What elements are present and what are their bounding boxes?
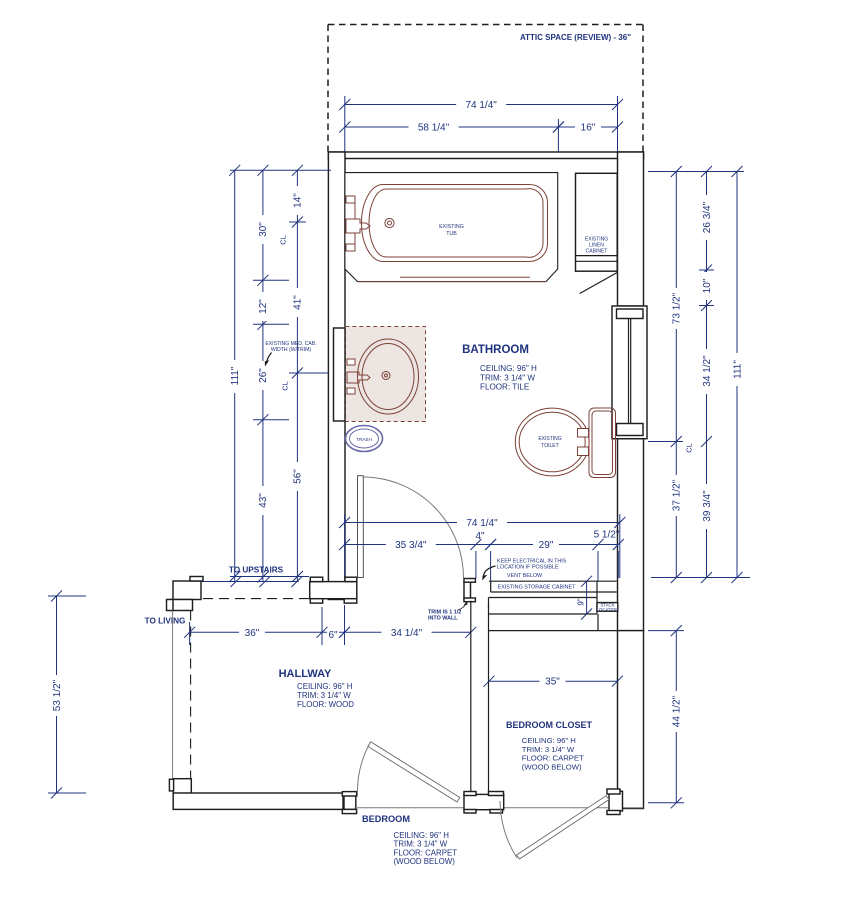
svg-text:EXISTING: EXISTING — [439, 224, 464, 230]
svg-text:34 1/2": 34 1/2" — [702, 355, 713, 387]
svg-text:CEILING: 96" H: CEILING: 96" H — [394, 831, 450, 840]
svg-text:BEDROOM: BEDROOM — [362, 814, 410, 824]
svg-text:44 1/2": 44 1/2" — [672, 695, 683, 727]
svg-text:EXISTING: EXISTING — [538, 436, 561, 442]
svg-text:39 3/4": 39 3/4" — [702, 490, 713, 522]
svg-text:LOCATION IF POSSIBLE: LOCATION IF POSSIBLE — [497, 564, 559, 570]
svg-text:73 1/2": 73 1/2" — [672, 292, 683, 324]
svg-text:LOCATION: LOCATION — [597, 607, 619, 612]
svg-text:TRASH: TRASH — [356, 437, 372, 442]
svg-text:37 1/2": 37 1/2" — [672, 479, 683, 511]
svg-text:35": 35" — [545, 677, 560, 688]
svg-text:6": 6" — [328, 630, 338, 641]
svg-text:CL: CL — [685, 443, 694, 453]
svg-text:CEILING: 96" H: CEILING: 96" H — [297, 682, 353, 691]
svg-text:10": 10" — [702, 278, 713, 293]
svg-text:CABINET: CABINET — [586, 249, 608, 255]
svg-text:4": 4" — [475, 531, 485, 542]
svg-text:35 3/4": 35 3/4" — [395, 540, 427, 551]
svg-text:74 1/4": 74 1/4" — [465, 100, 497, 111]
svg-text:FLOOR: WOOD: FLOOR: WOOD — [297, 700, 354, 709]
svg-text:ATTIC SPACE (REVIEW) - 36": ATTIC SPACE (REVIEW) - 36" — [520, 33, 631, 42]
svg-text:43": 43" — [258, 493, 269, 508]
svg-text:FLOOR: TILE: FLOOR: TILE — [480, 383, 530, 392]
svg-text:56": 56" — [293, 469, 304, 484]
svg-text:16": 16" — [581, 123, 596, 134]
svg-text:5 1/2": 5 1/2" — [594, 530, 620, 541]
svg-text:53 1/2": 53 1/2" — [52, 679, 63, 711]
svg-text:TRIM: 3 1/4" W: TRIM: 3 1/4" W — [394, 840, 448, 849]
svg-text:TRIM: 3 1/4" W: TRIM: 3 1/4" W — [480, 373, 535, 382]
svg-text:VENT BELOW: VENT BELOW — [507, 573, 543, 579]
svg-text:12": 12" — [258, 299, 269, 314]
svg-text:111": 111" — [732, 360, 743, 379]
svg-text:CL: CL — [279, 235, 288, 245]
svg-text:BEDROOM CLOSET: BEDROOM CLOSET — [506, 720, 593, 730]
svg-text:TRIM: 3 1/4" W: TRIM: 3 1/4" W — [297, 691, 351, 700]
svg-text:TUB: TUB — [446, 231, 457, 237]
svg-text:EXISTING STORAGE CABINET: EXISTING STORAGE CABINET — [498, 585, 576, 591]
svg-text:TOILET: TOILET — [541, 443, 558, 449]
svg-text:9": 9" — [577, 598, 586, 605]
svg-text:14": 14" — [293, 193, 304, 208]
svg-text:58 1/4": 58 1/4" — [418, 123, 450, 134]
svg-text:26 3/4": 26 3/4" — [702, 201, 713, 233]
svg-text:FLOOR: CARPET: FLOOR: CARPET — [394, 848, 458, 857]
svg-text:TRIM IS 1 1/2: TRIM IS 1 1/2 — [428, 609, 461, 615]
svg-text:CEILING: 96" H: CEILING: 96" H — [522, 736, 576, 745]
svg-text:HALLWAY: HALLWAY — [279, 668, 332, 680]
svg-text:INTO WALL: INTO WALL — [428, 616, 458, 622]
svg-text:111": 111" — [230, 366, 241, 385]
svg-text:(WOOD BELOW): (WOOD BELOW) — [522, 762, 582, 771]
svg-text:29": 29" — [539, 540, 554, 551]
svg-text:30": 30" — [258, 222, 269, 237]
svg-text:(WOOD BELOW): (WOOD BELOW) — [394, 857, 456, 866]
svg-text:41": 41" — [293, 295, 304, 310]
svg-text:TRIM: 3 1/4" W: TRIM: 3 1/4" W — [522, 745, 575, 754]
svg-text:TO LIVING: TO LIVING — [145, 617, 186, 626]
svg-text:CEILING: 96" H: CEILING: 96" H — [480, 364, 537, 373]
svg-text:74 1/4": 74 1/4" — [466, 518, 498, 529]
svg-text:34 1/4": 34 1/4" — [391, 628, 423, 639]
svg-text:CL: CL — [281, 381, 290, 391]
svg-text:BATHROOM: BATHROOM — [462, 344, 529, 356]
svg-text:WIDTH (W/TRIM): WIDTH (W/TRIM) — [271, 347, 311, 353]
svg-text:FLOOR: CARPET: FLOOR: CARPET — [522, 754, 584, 763]
svg-text:26": 26" — [258, 368, 269, 383]
svg-text:36": 36" — [245, 628, 260, 639]
svg-text:TO UPSTAIRS: TO UPSTAIRS — [229, 566, 284, 575]
